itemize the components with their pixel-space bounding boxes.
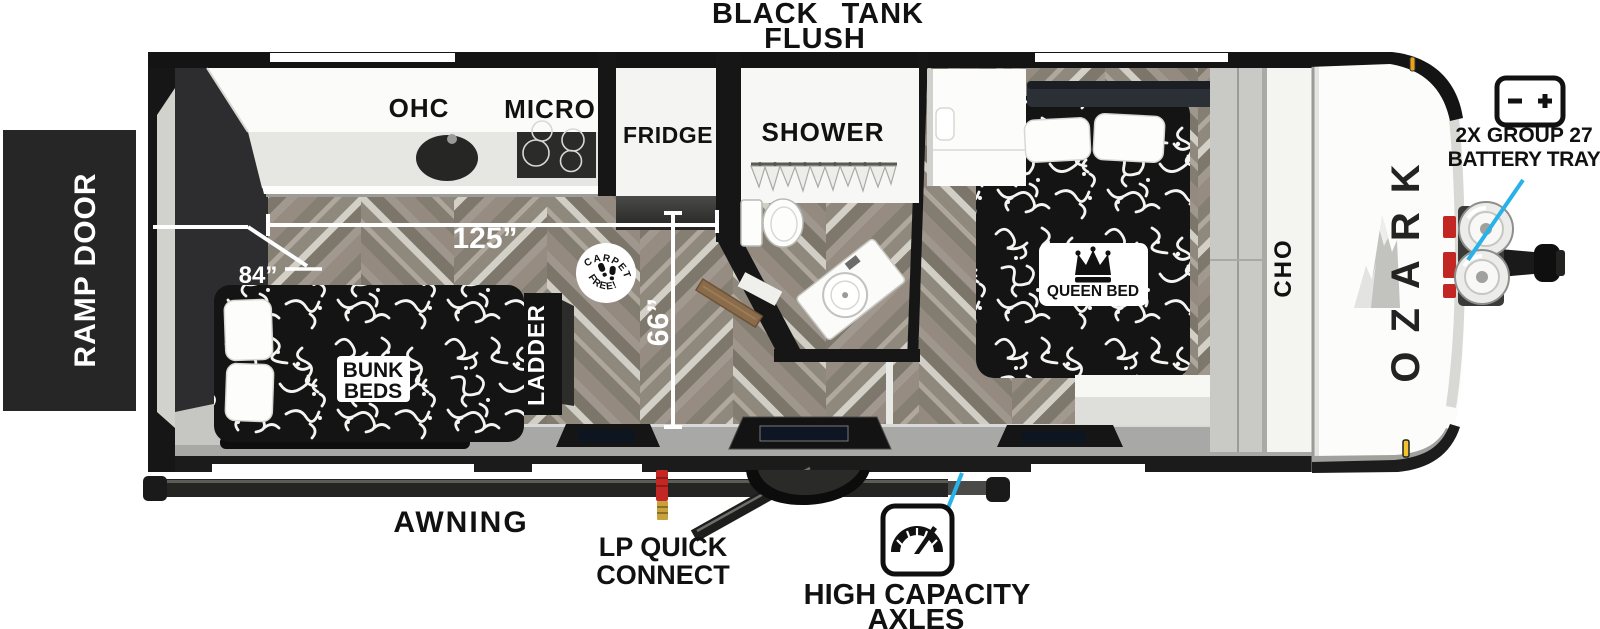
svg-text:BATTERY TRAY: BATTERY TRAY [1448, 148, 1600, 171]
svg-text:125”: 125” [452, 222, 517, 255]
svg-text:CONNECT: CONNECT [596, 560, 730, 590]
svg-text:OHC: OHC [389, 93, 450, 123]
svg-text:AWNING: AWNING [393, 506, 528, 539]
svg-text:2X GROUP 27: 2X GROUP 27 [1455, 124, 1592, 147]
svg-text:FRIDGE: FRIDGE [623, 122, 713, 148]
svg-text:CHO: CHO [1270, 238, 1297, 297]
svg-text:OZARK: OZARK [1384, 145, 1428, 382]
svg-text:BEDS: BEDS [344, 380, 402, 403]
svg-text:LP QUICK: LP QUICK [599, 532, 728, 562]
svg-text:BUNK: BUNK [343, 359, 404, 382]
svg-text:66”: 66” [642, 298, 675, 346]
svg-text:MICRO: MICRO [504, 94, 596, 124]
svg-text:SHOWER: SHOWER [762, 117, 885, 147]
svg-text:QUEEN BED: QUEEN BED [1047, 283, 1139, 300]
svg-text:LADDER: LADDER [523, 304, 549, 406]
svg-text:FLUSH: FLUSH [764, 23, 866, 55]
svg-text:84”: 84” [239, 262, 278, 289]
svg-text:RAMP DOOR: RAMP DOOR [69, 172, 102, 367]
svg-text:AXLES: AXLES [868, 604, 965, 629]
